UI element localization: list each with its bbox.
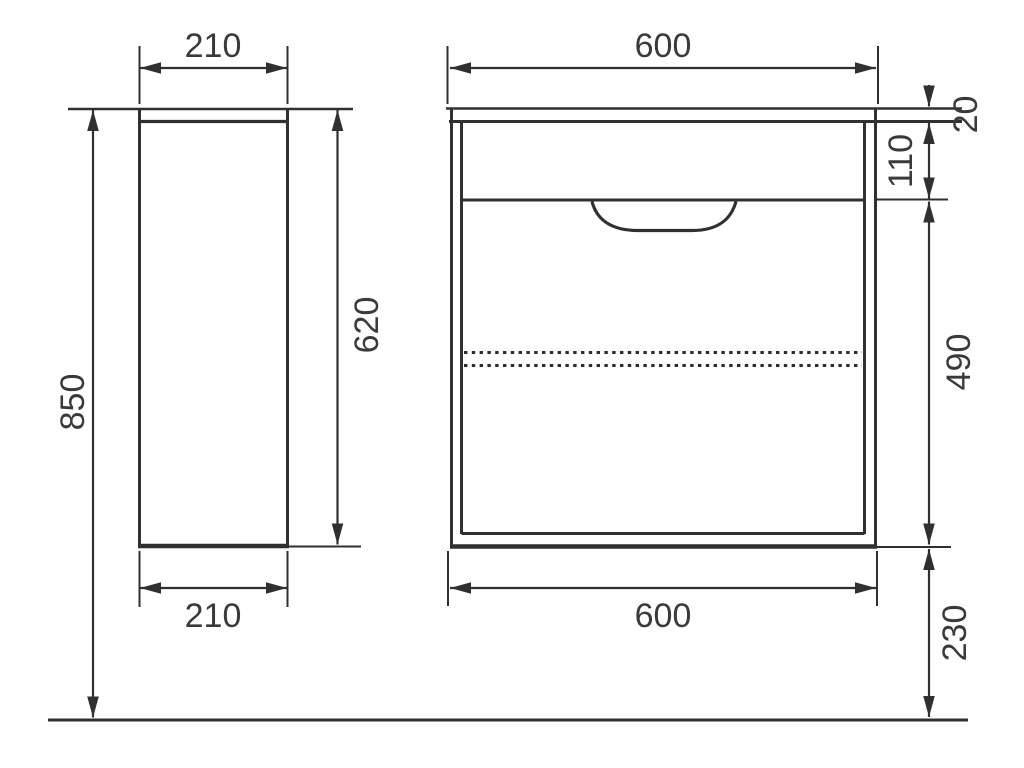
dim-label-front-width-bottom: 600 (635, 597, 692, 635)
dim-label-drawer-front-height: 110 (882, 134, 920, 188)
side-view: 210 210 850 620 (54, 27, 386, 718)
dimension-side-body-height: 620 (338, 110, 387, 545)
dimension-side-width-bottom: 210 (140, 551, 288, 635)
dimension-total-height: 850 (54, 110, 93, 718)
dim-label-top-panel-thickness: 20 (947, 96, 985, 134)
dim-label-lower-section-height: 490 (940, 334, 978, 391)
dim-label-front-width-top: 600 (635, 27, 692, 65)
dim-label-total-height: 850 (54, 374, 92, 431)
cabinet-dimension-drawing: 210 210 850 620 (0, 0, 1024, 768)
dimension-front-right-chain: 20 110 490 230 (882, 85, 985, 717)
dimension-side-width-top: 210 (140, 27, 288, 104)
dim-label-floor-clearance: 230 (936, 605, 974, 662)
dim-label-side-body-height: 620 (348, 297, 386, 354)
dimension-front-width-top: 600 (448, 27, 879, 104)
technical-drawing-page: 210 210 850 620 (0, 0, 1024, 768)
dim-label-side-width-top: 210 (185, 27, 242, 65)
dim-label-side-width-bottom: 210 (185, 597, 242, 635)
dimension-front-width-bottom: 600 (448, 551, 877, 635)
front-view: 600 600 20 110 490 230 (446, 27, 985, 717)
handle-recess-curve (592, 202, 736, 231)
